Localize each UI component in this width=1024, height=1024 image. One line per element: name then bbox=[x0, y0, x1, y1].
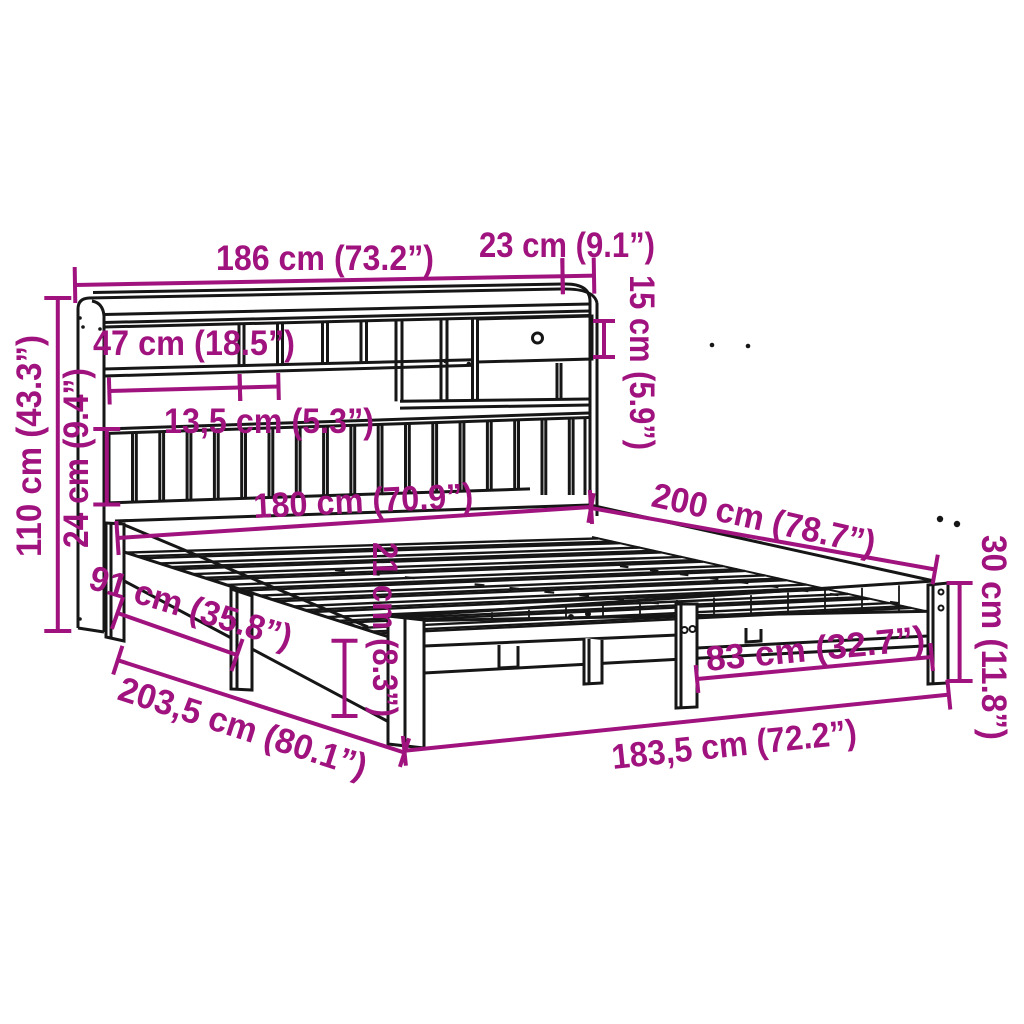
svg-text:15 cm (5.9”): 15 cm (5.9”) bbox=[622, 275, 661, 450]
svg-text:110 cm (43.3”): 110 cm (43.3”) bbox=[10, 335, 49, 557]
svg-text:30 cm (11.8”): 30 cm (11.8”) bbox=[974, 535, 1013, 740]
svg-text:47 cm (18.5”): 47 cm (18.5”) bbox=[93, 324, 295, 363]
svg-text:21 cm (8.3”): 21 cm (8.3”) bbox=[365, 542, 404, 717]
svg-text:186 cm (73.2”): 186 cm (73.2”) bbox=[216, 239, 434, 278]
svg-text:23 cm (9.1”): 23 cm (9.1”) bbox=[479, 226, 655, 265]
svg-text:24 cm (9.4”): 24 cm (9.4”) bbox=[57, 368, 96, 548]
svg-text:13,5 cm (5.3”): 13,5 cm (5.3”) bbox=[164, 402, 374, 441]
